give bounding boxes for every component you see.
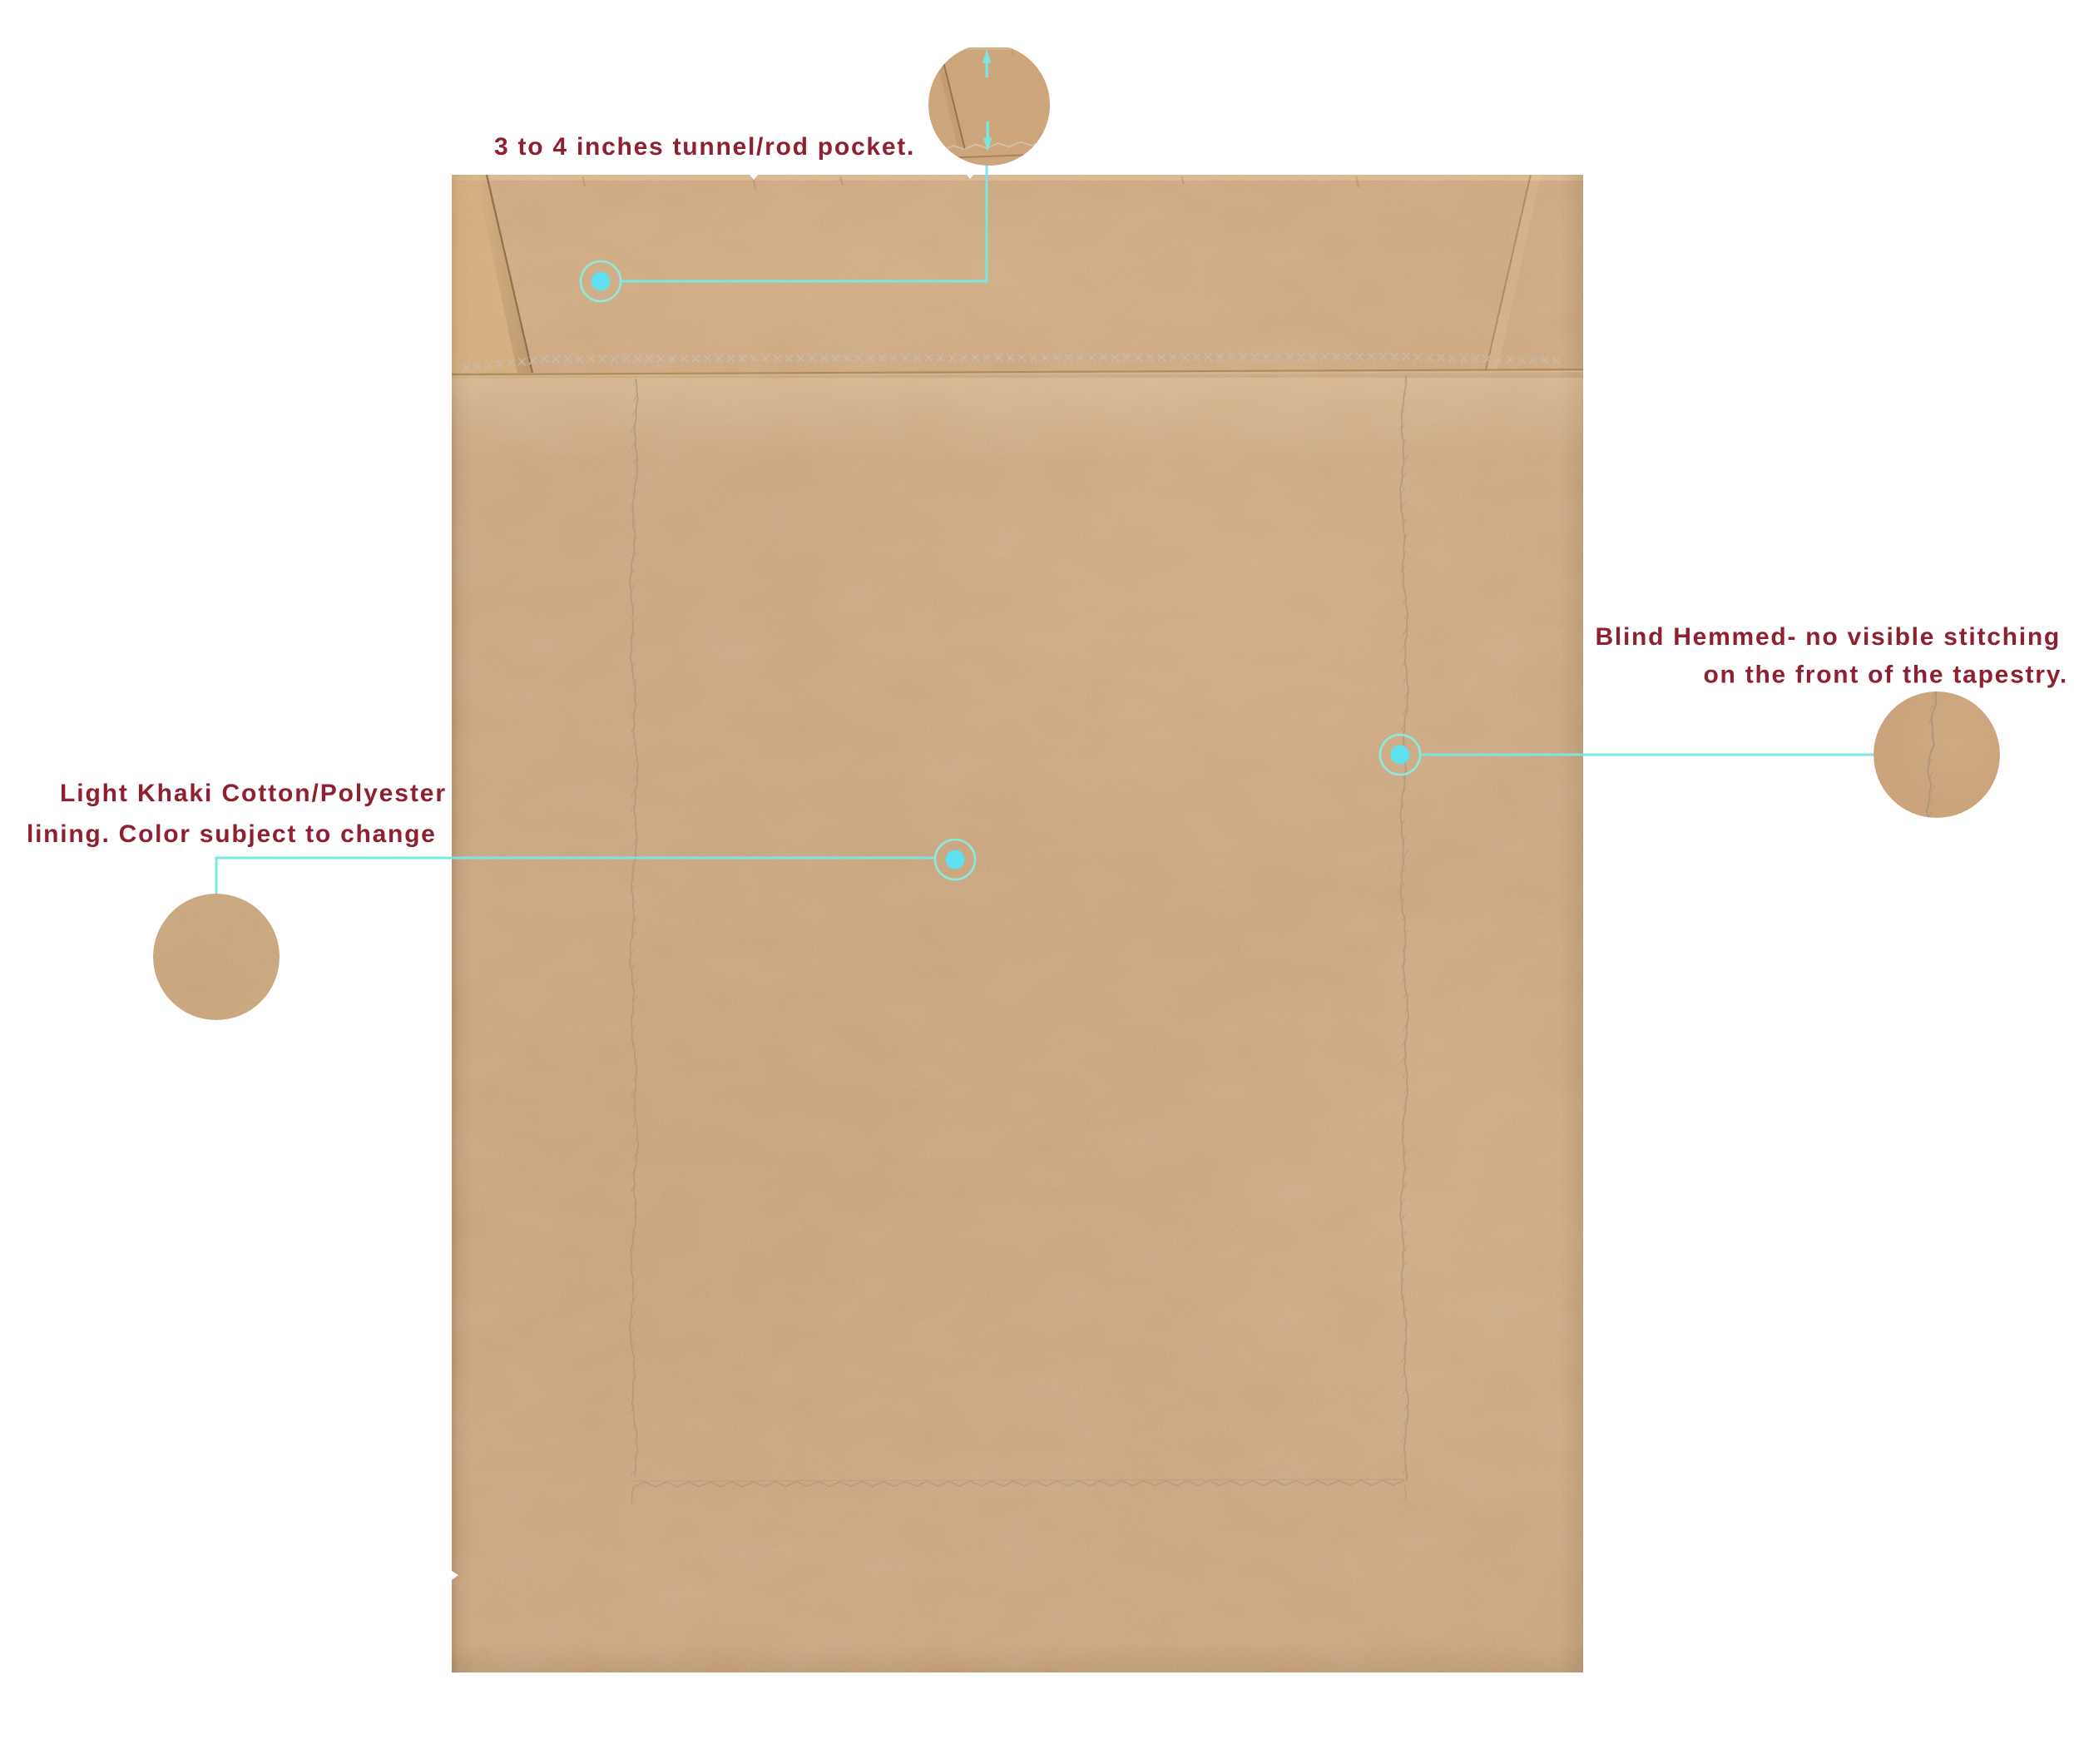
svg-text:Blind Hemmed- no visible stitc: Blind Hemmed- no visible stitching: [1595, 623, 2061, 651]
svg-text:3 to 4 inches tunnel/rod pocke: 3 to 4 inches tunnel/rod pocket.: [494, 133, 915, 161]
svg-text:on the front of the tapestry.: on the front of the tapestry.: [1703, 661, 2068, 689]
svg-text:Light Khaki Cotton/Polyester: Light Khaki Cotton/Polyester: [60, 780, 447, 807]
svg-text:lining. Color subject to chang: lining. Color subject to change: [27, 820, 437, 848]
